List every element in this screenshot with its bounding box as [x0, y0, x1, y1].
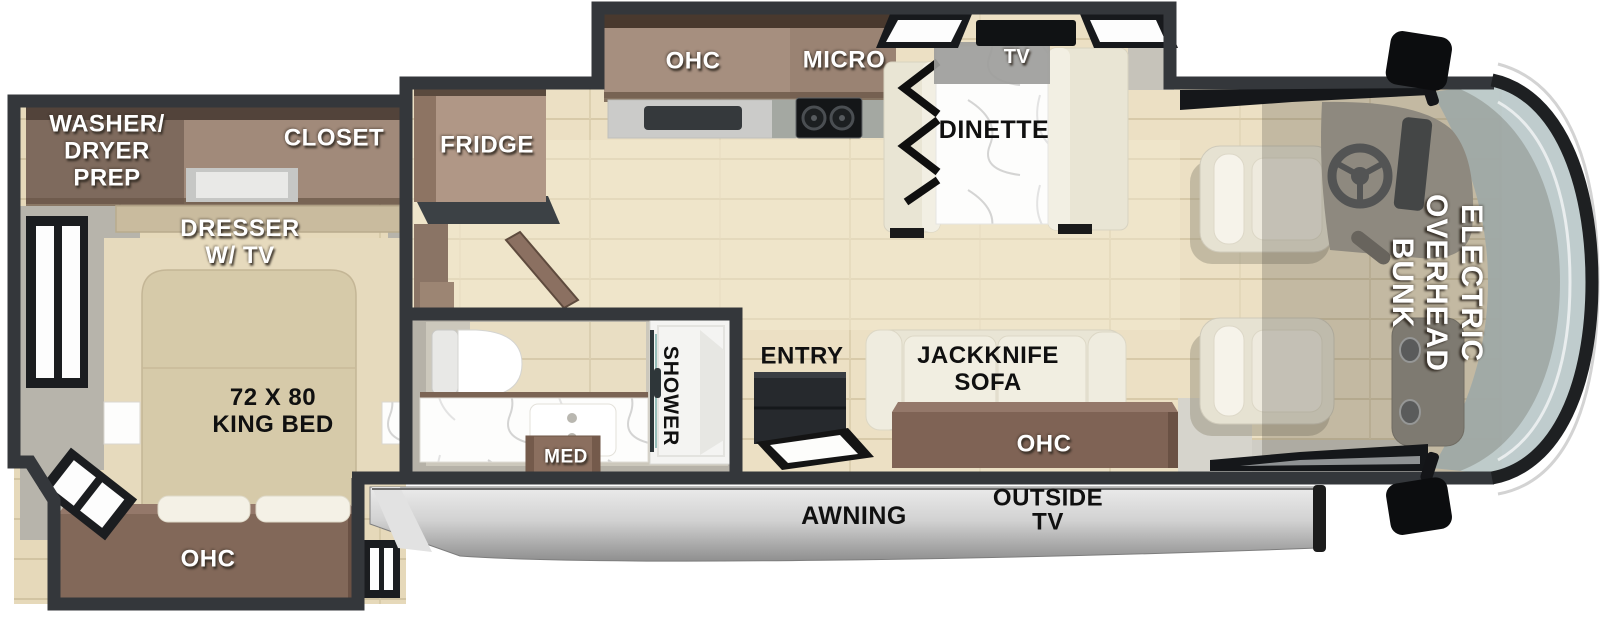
nightstand-left — [104, 402, 140, 444]
dinette-window-right — [1080, 14, 1178, 48]
bedroom-area — [14, 101, 408, 604]
bathroom-area — [412, 308, 740, 478]
shower-door-handle — [654, 368, 661, 398]
dinette-tv-panel — [934, 42, 1050, 84]
electric-overhead-bunk-footprint — [1262, 89, 1560, 471]
dinette-window-left — [876, 14, 972, 48]
exterior-tv-strip — [976, 20, 1076, 46]
king-bed — [142, 270, 356, 512]
bedroom-window-right — [362, 540, 400, 598]
bedroom-window-left — [26, 216, 88, 388]
pillow — [256, 496, 350, 522]
sofa-ohc-cabinet — [892, 412, 1178, 468]
floorplan-rendering — [0, 0, 1600, 621]
rv-floorplan: WASHER/ DRYER PREP CLOSET DRESSER W/ TV … — [0, 0, 1600, 621]
cooktop — [796, 98, 862, 138]
shower-stall — [650, 318, 732, 464]
med-cabinet — [526, 436, 600, 476]
toilet — [432, 330, 522, 398]
kitchen-sink — [644, 106, 742, 130]
pillow — [158, 496, 250, 522]
awning-bar — [370, 485, 1326, 561]
dresser-tv-counter — [116, 206, 400, 232]
awning-end-cap — [1313, 485, 1326, 552]
